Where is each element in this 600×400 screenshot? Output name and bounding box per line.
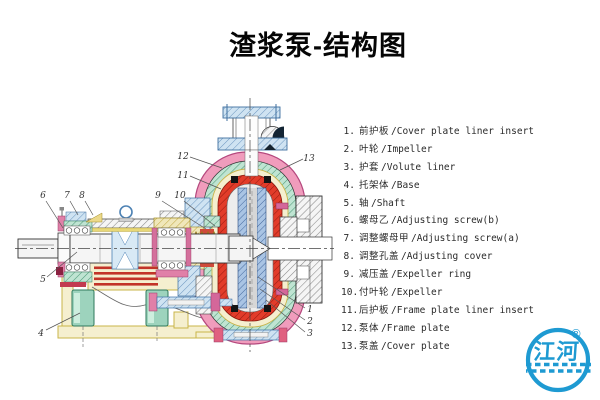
logo-text: 江河 (533, 340, 581, 365)
adjusting-cover (86, 213, 102, 222)
callout-10: 10 (174, 191, 186, 201)
callout-9: 9 (155, 191, 161, 201)
callout-8: 8 (79, 191, 85, 201)
callout-5: 5 (40, 275, 46, 285)
brand-logo: 江河 ® (526, 327, 591, 390)
oil-fin (94, 278, 158, 281)
pump-structure-drawing: 1 2 3 4 5 6 7 8 9 10 11 12 13 (0, 0, 600, 400)
callout-6: 6 (40, 191, 46, 201)
callout-12: 12 (177, 152, 189, 162)
registered-mark: ® (570, 327, 582, 341)
seal-block (264, 305, 271, 312)
seal-block (264, 176, 271, 183)
callout-13: 13 (303, 154, 315, 164)
discharge-flange (218, 104, 287, 150)
callout-4: 4 (37, 329, 44, 339)
callout-3: 3 (307, 329, 313, 339)
pump-diagram: 1 2 3 4 5 6 7 8 9 10 11 12 13 (15, 98, 334, 352)
callout-7: 7 (64, 191, 70, 201)
seal-block (231, 176, 238, 183)
callout-11: 11 (177, 171, 188, 181)
lifting-eye (120, 206, 132, 218)
callout-1: 1 (307, 305, 313, 315)
callout-2: 2 (306, 317, 313, 327)
casing-bolt (214, 328, 287, 342)
oil-fin (94, 272, 158, 275)
oil-fin (94, 283, 158, 286)
